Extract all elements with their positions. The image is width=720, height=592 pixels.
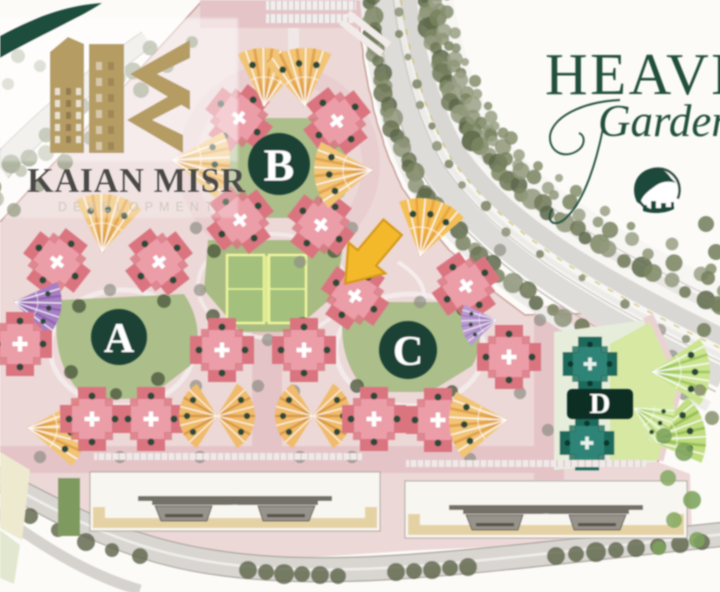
svg-text:Gardens: Gardens: [598, 96, 720, 146]
svg-text:B: B: [264, 139, 295, 190]
svg-text:C: C: [393, 329, 423, 375]
svg-text:A: A: [104, 316, 135, 362]
svg-text:DEVELOPMENT: DEVELOPMENT: [58, 200, 218, 214]
svg-text:KAIAN MISR: KAIAN MISR: [27, 162, 246, 200]
svg-text:D: D: [590, 388, 611, 420]
